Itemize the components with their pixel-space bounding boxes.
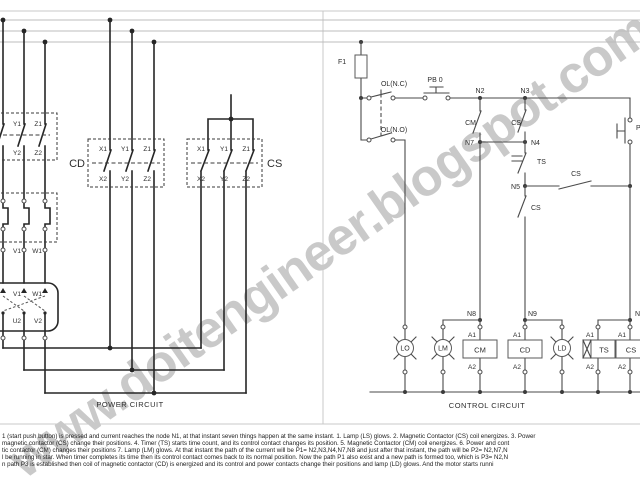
coil-cd: A1 CD A2 [508, 320, 542, 392]
coil-ts-label: TS [599, 346, 609, 355]
coil-cd-a2-label: A2 [513, 364, 521, 371]
cs-top-contact-label: CS [511, 120, 521, 127]
control-circuit: F1 OL(N.C) PB 0 N2 N3 [338, 40, 640, 410]
motor-tail-wires [1, 315, 47, 393]
coil-cs: A1 CS A2 [616, 320, 640, 392]
cs-hold-line: CS [525, 171, 630, 320]
cs-hold-contact-label: CS [571, 171, 581, 178]
cm-contact-y2-label: Y2 [13, 150, 21, 157]
cs-mid-contact-label: CS [531, 205, 541, 212]
cs-z1-label: Z1 [242, 146, 250, 153]
pb0-label: PB 0 [427, 77, 442, 84]
power-circuit: Y1 Z1 Y2 Z2 V1 W1 [0, 18, 282, 409]
coil-cm-label: CM [474, 346, 486, 355]
node-n5-label: N5 [511, 184, 520, 191]
cm-contact-label: CM [465, 120, 476, 127]
lamp-lm-label: LM [438, 346, 448, 353]
control-return-bus [370, 390, 640, 394]
figure-frame [0, 11, 640, 424]
caption-line-4: l be running in star. When timer complet… [2, 454, 640, 461]
coil-cs-a1-label: A1 [618, 332, 626, 339]
node-n8-label: N8 [467, 311, 476, 318]
star-contactor-cs: CS X1 Y1 Z1 X2 Y2 Z2 [187, 95, 282, 393]
supply-column-wires [0, 18, 50, 283]
node-n2-label: N2 [476, 88, 485, 95]
control-circuit-title: CONTROL CIRCUIT [449, 401, 525, 410]
ol-nc-label: OL(N.C) [381, 81, 407, 88]
caption-line-5: n path P3 is established then coil of ma… [2, 461, 640, 468]
schematic-page: www.doitengineer.blogspot.com [0, 0, 640, 480]
node-n9-label: N9 [528, 311, 537, 318]
cm-contact-z1-label: Z1 [34, 121, 42, 128]
cd-x2-label: X2 [99, 176, 107, 183]
cd-y1-label: Y1 [121, 146, 129, 153]
lamp-lo: LO [394, 325, 416, 392]
motor-box: V1 W1 U2 V2 [0, 283, 58, 331]
pb1-label: PB 1 [636, 125, 640, 132]
cm-contact-y1-label: Y1 [13, 121, 21, 128]
lamp-ld-label: LD [558, 346, 567, 353]
lamp-lo-label: LO [400, 346, 410, 353]
ol-no-branch: OL(N.O) [361, 98, 407, 325]
caption-line-1: 1 (start push button) is pressed and cur… [2, 433, 640, 440]
lamp-lm: LM [432, 320, 454, 392]
cd-z1-label: Z1 [143, 146, 151, 153]
start-pushbutton-pb1: PB 1 [617, 98, 640, 188]
timer-branch: CS TS N5 CS [511, 98, 546, 320]
coil-cd-a1-label: A1 [513, 332, 521, 339]
top-rail: OL(N.C) PB 0 N2 N3 [359, 77, 630, 100]
coil-cm-a1-label: A1 [468, 332, 476, 339]
node-n4-label: N4 [531, 140, 540, 147]
fuse-label: F1 [338, 59, 346, 66]
caption-line-2: magnetic contactor (CS) change their pos… [2, 440, 640, 447]
cd-z2-label: Z2 [143, 176, 151, 183]
caption-block: 1 (start push button) is pressed and cur… [2, 433, 640, 468]
ol-no-label: OL(N.O) [381, 127, 407, 134]
cm-contact-z2-label: Z2 [34, 150, 42, 157]
cs-y2-label: Y2 [220, 176, 228, 183]
node-n3-label: N3 [521, 88, 530, 95]
caption-line-3: tic contactor (CM) changes their positio… [2, 447, 640, 454]
coil-cs-a2-label: A2 [618, 364, 626, 371]
power-circuit-title: POWER CIRCUIT [96, 400, 163, 409]
node-n1-label: N1 [635, 311, 640, 318]
coil-ts: A1 TS A2 [583, 320, 615, 392]
coil-cs-label: CS [626, 346, 636, 355]
coil-cd-label: CD [520, 346, 531, 355]
main-contactor-box: Y1 Z1 Y2 Z2 [0, 113, 57, 160]
coil-ts-a2-label: A2 [586, 364, 594, 371]
cable-terminal-v1-label: V1 [13, 248, 21, 255]
fuse-f1: F1 [338, 40, 367, 98]
cable-terminal-w1-label: W1 [32, 248, 42, 255]
coil-cm-a2-label: A2 [468, 364, 476, 371]
motor-terminal-u2-label: U2 [13, 318, 22, 325]
motor-terminal-w1-label: W1 [32, 291, 42, 298]
cd-y2-label: Y2 [121, 176, 129, 183]
cd-box-label: CD [69, 158, 85, 170]
node-n7-label: N7 [465, 140, 474, 147]
winding-link-lines [3, 346, 246, 396]
cs-box-label: CS [267, 158, 282, 170]
star-delta-schematic: Y1 Z1 Y2 Z2 V1 W1 [0, 0, 640, 480]
coil-cm: A1 CM A2 [463, 320, 497, 392]
ts-contact-label: TS [537, 159, 546, 166]
cm-holding-contact: CM N7 N4 [465, 98, 540, 320]
cs-z2-label: Z2 [242, 176, 250, 183]
motor-terminal-v1-label: V1 [13, 291, 21, 298]
delta-contactor-cd: CD X1 Y1 Z1 X2 Y2 Z2 [69, 18, 164, 393]
cs-x2-label: X2 [197, 176, 205, 183]
cd-x1-label: X1 [99, 146, 107, 153]
motor-terminal-v2-label: V2 [34, 318, 42, 325]
cs-y1-label: Y1 [220, 146, 228, 153]
lamp-ld: LD [551, 320, 573, 392]
cs-x1-label: X1 [197, 146, 205, 153]
coil-lamp-row: N8 N9 N1 LO [370, 311, 640, 394]
coil-ts-a1-label: A1 [586, 332, 594, 339]
